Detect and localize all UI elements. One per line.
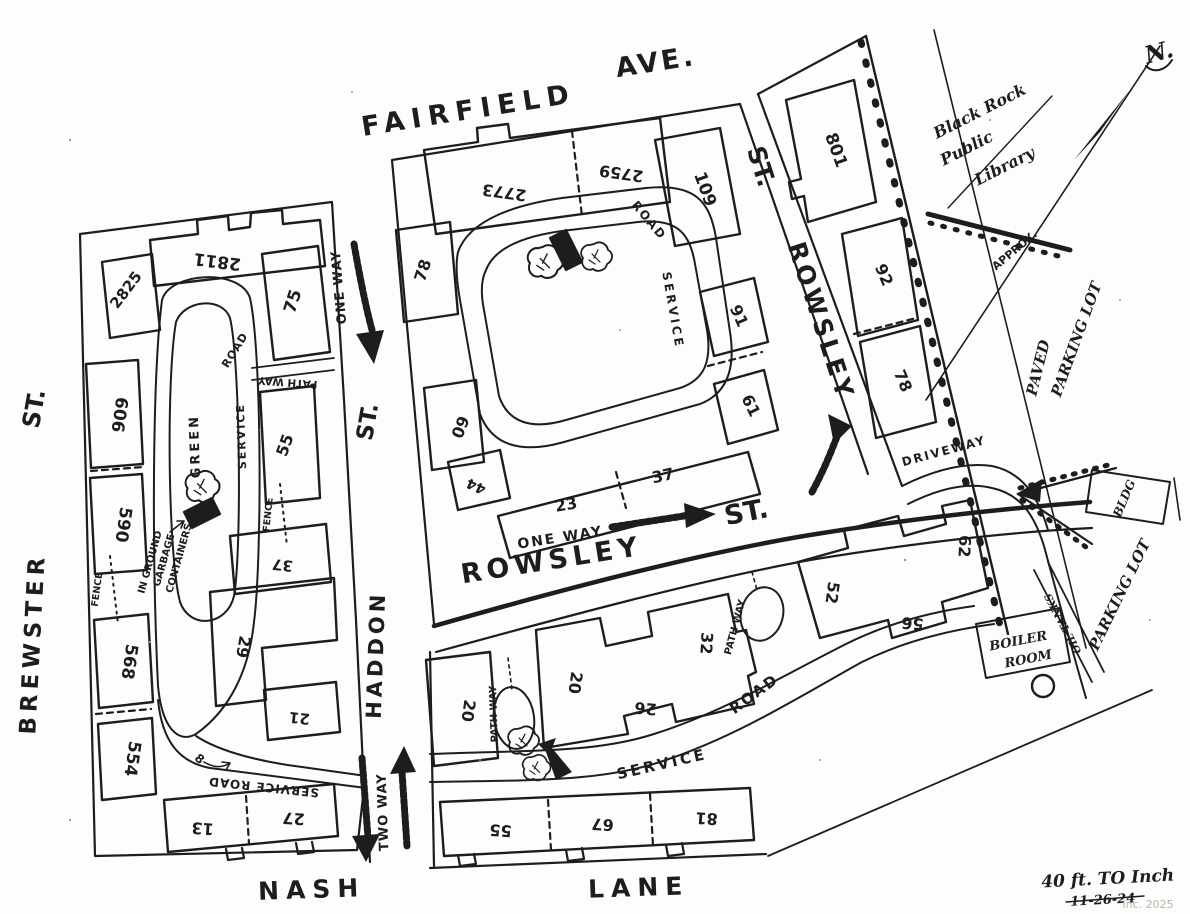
street-label-nash: NASH xyxy=(258,873,366,906)
porch-notch xyxy=(296,842,314,854)
building-label-60: 60 xyxy=(447,413,473,441)
building-label-78-east: 78 xyxy=(890,367,916,395)
street-label-brewster: BREWSTER xyxy=(15,552,50,735)
wall-arrowhead xyxy=(1016,479,1042,502)
one-way-arrow-shaft xyxy=(612,516,684,527)
pathway-label-2: PATH WAY xyxy=(723,598,748,656)
one-way-arrow-shaft xyxy=(354,244,372,330)
pathway-label-west: PATH WAY xyxy=(257,374,318,390)
lot-divider xyxy=(854,318,916,334)
building-label-801: 801 xyxy=(820,130,851,170)
building-label-568: 568 xyxy=(117,643,142,681)
service-label-west: SERVICE xyxy=(234,403,249,470)
parcel-south-line xyxy=(768,690,1152,856)
two-way-arrow-shaft xyxy=(402,772,407,846)
fence-line xyxy=(280,484,287,546)
eight-label: 8 xyxy=(192,751,207,767)
building-label-44: 44 xyxy=(464,474,489,497)
fence-label-right: FENCE xyxy=(261,497,276,532)
lot-divider xyxy=(650,794,653,846)
north-arrowhead xyxy=(1074,90,1130,160)
lot-divider xyxy=(572,131,582,216)
site-plan-map: FAIRFIELD AVE. BREWSTER ST. HADDON ST. R… xyxy=(0,0,1190,914)
building-label-27: 27 xyxy=(282,808,306,829)
bldg-label: BLDG xyxy=(1110,478,1139,521)
building-label-61: 61 xyxy=(738,391,765,419)
building-label-21: 21 xyxy=(288,708,311,728)
tree-icon xyxy=(528,245,564,278)
building-29 xyxy=(210,578,337,706)
service-label-south: SERVICE xyxy=(615,745,709,783)
service-road-north-edge xyxy=(430,606,974,754)
service-label-center: SERVICE xyxy=(659,271,686,350)
building-label-606: 606 xyxy=(107,396,132,434)
building-label-29: 29 xyxy=(232,634,255,659)
wall-ticks xyxy=(1020,464,1112,550)
north-label: N. xyxy=(1140,34,1176,70)
building-label-55-south: 55 xyxy=(489,820,513,841)
approx-wall-line xyxy=(928,214,1070,250)
building-label-67: 67 xyxy=(591,814,615,835)
building-label-23: 23 xyxy=(553,493,578,516)
building-label-20: 20 xyxy=(564,670,586,695)
building-label-590: 590 xyxy=(111,506,136,544)
service-road-label-west: SERVICE ROAD xyxy=(207,774,319,800)
one-way-arrowhead xyxy=(356,330,384,364)
lot-divider xyxy=(616,472,626,508)
street-label-haddon-st: ST. xyxy=(352,401,384,442)
tree-icon xyxy=(523,755,551,781)
building-label-55-west: 55 xyxy=(272,431,297,458)
two-way-arrowhead-up xyxy=(390,746,416,774)
rowsley-street xyxy=(434,414,1092,652)
building-label-81: 81 xyxy=(695,808,719,829)
scale-note: 40 ft. TO Inch xyxy=(1041,866,1175,893)
building-label-109: 109 xyxy=(689,169,720,209)
fence-line xyxy=(110,556,118,624)
pathway-label-1: PATH WAY xyxy=(488,685,501,743)
two-way-label: TWO WAY xyxy=(375,773,393,851)
two-way-arrow-shaft xyxy=(362,758,368,838)
lot-divider xyxy=(246,796,249,844)
watermark: Inc. 2025 xyxy=(1122,898,1173,911)
building-label-92: 92 xyxy=(871,261,897,289)
street-label-fairfield-ave: AVE. xyxy=(613,41,698,84)
building-label-62: 62 xyxy=(954,535,974,558)
east-block-top-edge xyxy=(758,36,866,94)
lot-divider xyxy=(708,352,762,366)
street-label-rowsley-upper-st: ST. xyxy=(741,143,781,191)
building-label-13: 13 xyxy=(191,818,215,839)
building-label-2811: 2811 xyxy=(193,248,242,274)
building-label-56: 56 xyxy=(901,613,925,634)
oil-tanks-label: OIL TANKS xyxy=(1042,591,1084,656)
building-label-20-west: 20 xyxy=(457,698,479,723)
building-label-78-center: 78 xyxy=(410,257,435,284)
building-label-32: 32 xyxy=(696,632,716,655)
bldg-bracket xyxy=(1174,478,1180,520)
street-label-rowsley-lower-st: ST. xyxy=(722,493,771,532)
street-label-brewster-st: ST. xyxy=(17,387,51,430)
building-label-2825: 2825 xyxy=(106,268,146,312)
building-label-554: 554 xyxy=(120,740,145,778)
pathway-stem xyxy=(752,572,757,590)
service-road-south xyxy=(158,700,366,788)
approx-wall-ticks xyxy=(930,223,1066,258)
paved-parking-lot-label: PARKING LOT xyxy=(1047,278,1106,400)
building-label-37-center: 37 xyxy=(650,464,676,487)
building-label-26: 26 xyxy=(634,698,658,719)
tree-icon xyxy=(581,242,612,270)
pathway-stem xyxy=(508,658,512,690)
green-label: GREEN xyxy=(187,414,204,479)
lot-divider xyxy=(96,709,151,714)
street-label-lane: LANE xyxy=(588,871,690,904)
one-way-label-haddon: ONE WAY xyxy=(329,250,350,325)
building-label-2759: 2759 xyxy=(598,161,645,186)
driveway-label: DRIVEWAY xyxy=(900,433,987,469)
building-label-75: 75 xyxy=(280,287,306,316)
street-label-haddon: HADDON xyxy=(362,590,390,719)
lot-divider xyxy=(548,800,551,850)
building-label-52: 52 xyxy=(821,580,843,605)
speckles xyxy=(69,91,1151,821)
parking-lot-label: PARKING LOT xyxy=(1084,535,1154,654)
room-label: ROOM xyxy=(1002,648,1053,672)
garbage-container-icon xyxy=(550,230,582,270)
fence-label-left: FENCE xyxy=(90,572,106,608)
lane-north-line xyxy=(430,854,766,868)
site-plan-sheet: FAIRFIELD AVE. BREWSTER ST. HADDON ST. R… xyxy=(0,0,1190,914)
oil-tank-icon xyxy=(1032,675,1054,697)
building-label-2773: 2773 xyxy=(481,180,528,205)
south-block xyxy=(352,244,1152,868)
building-label-37-west: 37 xyxy=(271,555,294,575)
